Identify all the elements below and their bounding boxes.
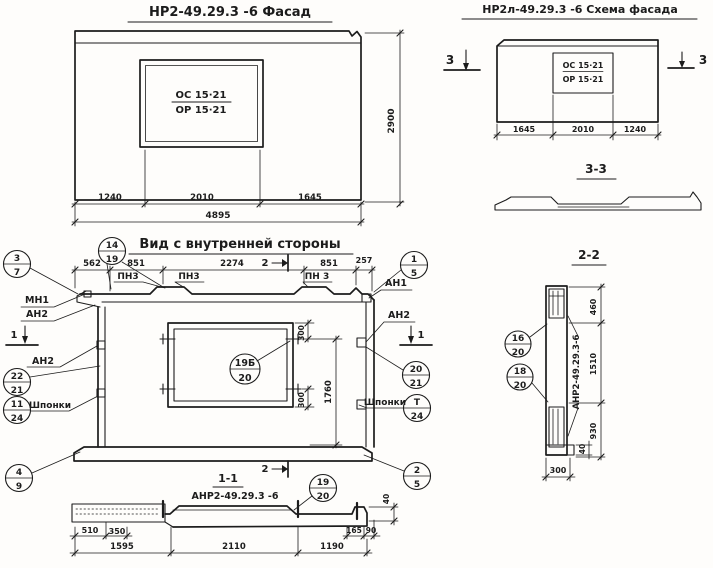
dim-1510: 1510 (589, 352, 598, 375)
facade-window-label-bottom: ОР 15·21 (176, 105, 227, 116)
schema-window-label-top: ОС 15·21 (563, 61, 604, 70)
balloon-19-20: 19 20 (294, 475, 337, 511)
arrow-right-icon (282, 259, 288, 267)
mark-2-label: 2 (262, 258, 269, 269)
insulation-dots (76, 509, 160, 514)
label-an2-left: АН2 (32, 356, 54, 367)
section-mark-1-right: 1 (400, 326, 432, 345)
balloon-22-21: 22 21 (4, 366, 101, 396)
dim-930: 930 (589, 422, 598, 439)
dim-1240: 1240 (98, 193, 122, 203)
profile-slab (165, 506, 367, 527)
balloon-18-20: 18 20 (507, 364, 548, 402)
dim-562: 562 (83, 259, 101, 269)
drawing-sheet: НР2-49.29.3 -6 Фасад ОС 15·21 ОР 15·21 1… (0, 0, 713, 568)
arrow-down-icon (679, 61, 685, 68)
leader-line (364, 455, 404, 471)
balloon-top: 11 (11, 400, 24, 410)
dim-40: 40 (382, 494, 391, 504)
dim-2274: 2274 (220, 259, 244, 269)
facade-window-inner (146, 66, 258, 142)
balloon-bottom: 20 (238, 373, 252, 384)
balloon-top: 4 (16, 468, 22, 478)
panel-working-drawing: НР2-49.29.3 -6 Фасад ОС 15·21 ОР 15·21 1… (0, 0, 713, 568)
balloon-19b-20: 19Б 20 (230, 341, 290, 384)
balloon-top: 18 (514, 367, 527, 377)
panel-side-outer (98, 300, 374, 447)
facade-view: НР2-49.29.3 -6 Фасад ОС 15·21 ОР 15·21 1… (72, 5, 404, 226)
balloon-3-7: 3 7 (4, 251, 79, 295)
inner-side-view: Вид с внутренней стороны 14 19 562 851 2… (4, 237, 433, 492)
section-mark-3-left: 3 (444, 50, 480, 71)
panel-top-edge (80, 287, 374, 300)
leader-line (294, 496, 312, 510)
balloon-top: 19 (317, 478, 330, 488)
label-shponki-right: Шпонки (364, 398, 406, 408)
dim-2110: 2110 (222, 542, 246, 552)
anchor-hook-an2-right (357, 338, 366, 347)
balloon-11-24: 11 24 (4, 397, 31, 425)
dim-300: 300 (550, 466, 567, 475)
mark-3-label: 3 (446, 53, 454, 67)
leader-line (30, 268, 78, 294)
dim-257: 257 (356, 256, 373, 265)
facade-title: НР2-49.29.3 -6 Фасад (149, 5, 311, 20)
section-3-3: 3-3 (495, 162, 701, 210)
section-mark-1-left: 1 (6, 326, 38, 345)
balloon-bottom: 19 (106, 255, 119, 265)
arrow-down-icon (22, 336, 28, 344)
balloon-top: 14 (106, 241, 119, 251)
balloon-top: 19Б (235, 358, 255, 369)
section-mark-3-right: 3 (668, 52, 707, 68)
top-anchor-lines (549, 291, 564, 315)
balloon-bottom: 5 (411, 269, 417, 279)
leader-line (30, 366, 100, 377)
dim-510: 510 (82, 526, 99, 535)
label-pn3-a: ПН3 (117, 272, 138, 282)
balloon-top: 1 (411, 255, 417, 265)
section-2-2-label: АНР2-49.29.3-6 (572, 335, 582, 410)
dim-1645: 1645 (513, 125, 536, 134)
balloon-top: 22 (11, 372, 24, 382)
balloon-bottom: 21 (410, 379, 423, 389)
profile-step (165, 522, 173, 527)
balloon-bottom: 20 (317, 492, 330, 502)
mark-2-label: 2 (262, 464, 269, 475)
dim-350: 350 (109, 527, 126, 536)
leader-line (530, 324, 547, 337)
balloon-bottom: 21 (11, 386, 24, 396)
arrow-right-icon (282, 465, 288, 473)
section-1-1-label: АНР2-49.29.3 -6 (192, 491, 279, 502)
leader-line (32, 452, 80, 473)
balloon-bottom: 20 (514, 381, 527, 391)
dim-300-top: 300 (297, 325, 306, 341)
dim-1760: 1760 (324, 380, 334, 404)
balloon-top: 3 (14, 254, 20, 264)
schema-title: НР2л-49.29.3 -6 Схема фасада (482, 3, 678, 16)
balloon-bottom: 24 (411, 412, 424, 422)
top-anchor-detail (549, 289, 564, 318)
dim-165: 165 (346, 526, 362, 535)
balloon-t-24: Т 24 (404, 395, 431, 423)
dim-851-right: 851 (320, 259, 338, 269)
inner-view-title: Вид с внутренней стороны (139, 237, 340, 252)
section-1-1-title: 1-1 (218, 472, 238, 485)
label-shponki-left: Шпонки (29, 401, 71, 411)
label-mn1: МН1 (25, 295, 49, 306)
label-an2-right: АН2 (388, 310, 410, 321)
section-mark-2-top: 2 (262, 255, 288, 271)
arrow-down-icon (408, 336, 414, 344)
section-2-2: 2-2 АНР2-49.29.3-6 16 20 18 20 460 1510 (505, 248, 606, 481)
dim-4895: 4895 (205, 211, 230, 221)
balloon-top: Т (414, 398, 421, 408)
dim-40: 40 (578, 444, 587, 454)
mark-1-label: 1 (11, 330, 18, 341)
balloon-4-9: 4 9 (6, 452, 81, 492)
extension-lines (75, 33, 404, 226)
section-3-3-title: 3-3 (585, 162, 607, 176)
label-an1: АН1 (385, 278, 407, 289)
bottom-anchor-detail (549, 407, 564, 447)
dim-2900: 2900 (387, 108, 397, 133)
leader-line (366, 347, 403, 370)
dim-851-left: 851 (127, 259, 145, 269)
balloon-top: 2 (414, 466, 420, 476)
dim-90: 90 (366, 526, 376, 535)
bottom-anchor-lines (553, 409, 558, 444)
mark-1-label: 1 (418, 330, 425, 341)
balloon-bottom: 24 (11, 414, 24, 424)
leader-line (257, 341, 290, 361)
label-an2-left-top: АН2 (26, 309, 48, 320)
facade-schema-view: НР2л-49.29.3 -6 Схема фасада ОС 15·21 ОР… (444, 3, 707, 140)
balloon-top: 16 (512, 334, 525, 344)
facade-window-label-top: ОС 15·21 (176, 90, 227, 101)
balloon-bottom: 5 (414, 480, 420, 490)
balloon-top: 20 (410, 365, 423, 375)
balloon-2-5: 2 5 (364, 455, 431, 490)
dim-1645: 1645 (298, 193, 322, 203)
balloon-bottom: 20 (512, 348, 525, 358)
profile-left-block (72, 504, 165, 522)
schema-window (553, 53, 613, 93)
facade-window-outer (140, 60, 263, 147)
dim-300-bottom: 300 (297, 392, 306, 408)
panel-bottom-band (74, 447, 372, 461)
dim-2010: 2010 (572, 125, 595, 134)
label-pn3-b: ПН3 (178, 272, 199, 282)
section-mark-2-bottom: 2 (262, 461, 288, 477)
mark-3-label: 3 (699, 53, 707, 67)
balloon-bottom: 9 (16, 482, 22, 492)
dim-1190: 1190 (320, 542, 344, 552)
section-2-2-title: 2-2 (578, 248, 600, 262)
label-pn3-c: ПН 3 (305, 272, 329, 282)
dim-2010: 2010 (190, 193, 214, 203)
schema-window-label-bottom: ОР 15·21 (563, 75, 604, 84)
dim-1240: 1240 (624, 125, 647, 134)
balloon-bottom: 7 (14, 268, 20, 278)
balloon-20-21: 20 21 (366, 347, 430, 389)
dim-1595: 1595 (110, 542, 134, 552)
dim-460: 460 (589, 298, 598, 315)
balloon-16-20: 16 20 (505, 324, 547, 358)
section-1-1: 1-1 АНР2-49.29.3 -6 19 20 40 510 350 165… (70, 472, 398, 556)
